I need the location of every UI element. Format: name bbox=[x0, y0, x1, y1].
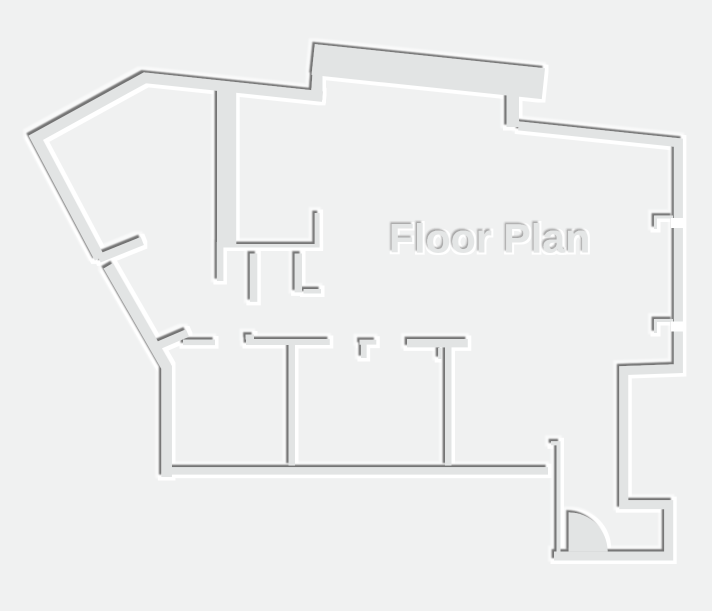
svg-text:Floor Plan: Floor Plan bbox=[389, 216, 590, 262]
